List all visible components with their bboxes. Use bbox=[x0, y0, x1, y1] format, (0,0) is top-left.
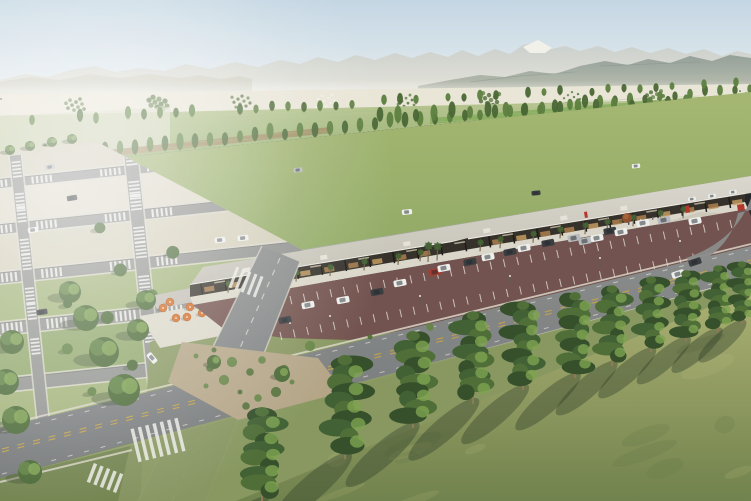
aerial-community-rendering bbox=[0, 0, 751, 501]
atmosphere-haze bbox=[0, 0, 751, 501]
scene-svg bbox=[0, 0, 751, 501]
